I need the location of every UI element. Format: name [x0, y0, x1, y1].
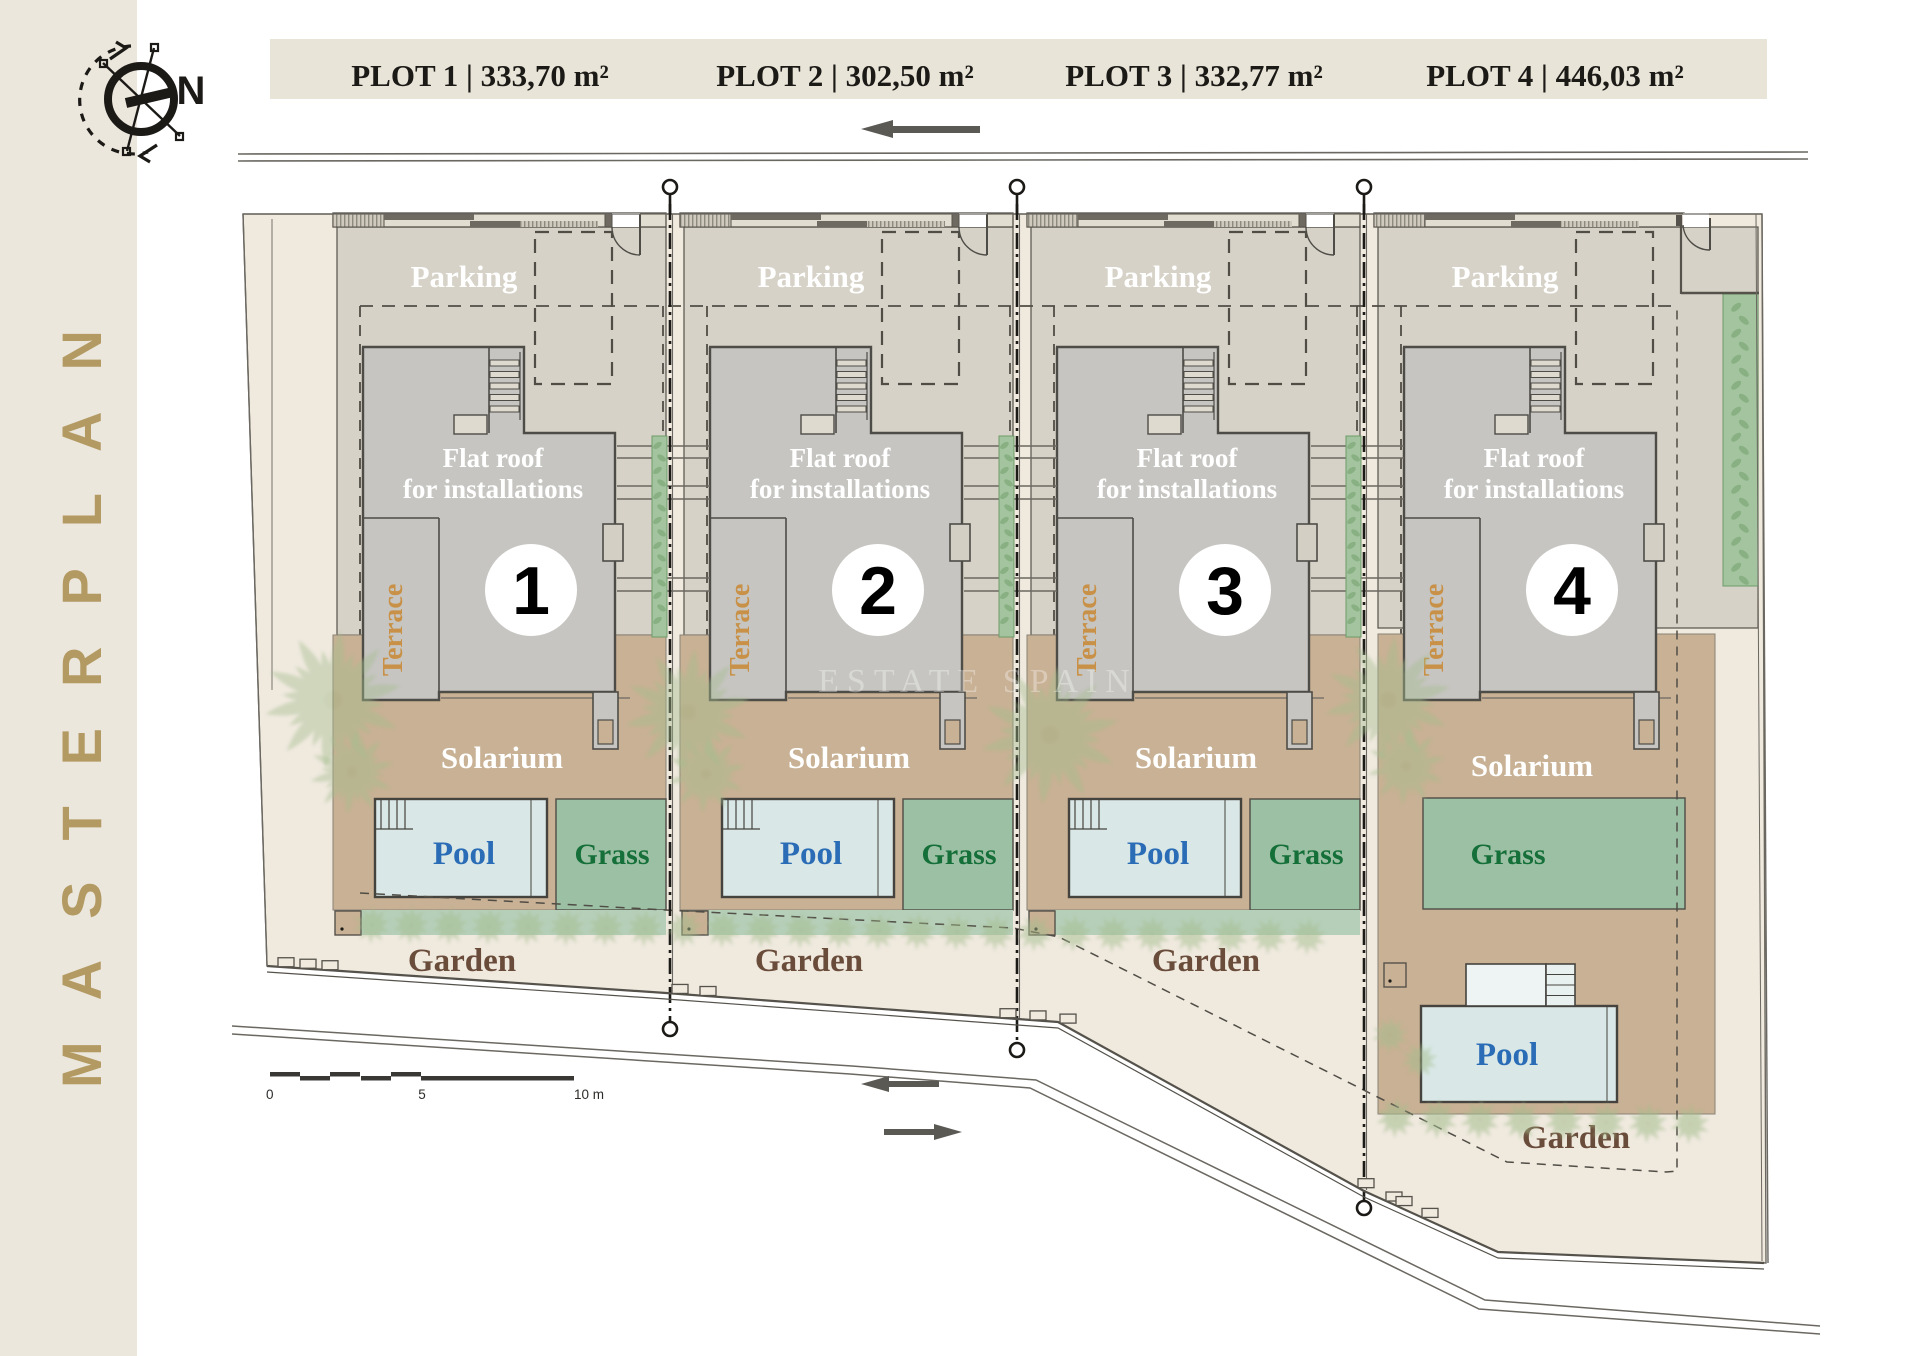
svg-text:1: 1	[512, 553, 550, 629]
svg-text:Parking: Parking	[411, 259, 518, 294]
svg-text:Flat roof: Flat roof	[790, 443, 892, 473]
svg-text:Pool: Pool	[1127, 836, 1189, 872]
svg-text:ESTATE SPAIN: ESTATE SPAIN	[818, 663, 1138, 700]
svg-text:Parking: Parking	[1105, 259, 1212, 294]
svg-text:N: N	[177, 69, 206, 113]
svg-text:Grass: Grass	[1471, 838, 1546, 871]
svg-text:5: 5	[418, 1087, 426, 1102]
svg-text:Solarium: Solarium	[788, 740, 910, 775]
svg-text:Garden: Garden	[755, 943, 863, 979]
svg-text:Solarium: Solarium	[441, 740, 563, 775]
svg-text:Terrace: Terrace	[378, 584, 409, 676]
svg-text:PLOT 1 | 333,70 m²: PLOT 1 | 333,70 m²	[351, 58, 609, 93]
svg-text:0: 0	[266, 1087, 274, 1102]
svg-text:Pool: Pool	[780, 836, 842, 872]
svg-text:2: 2	[859, 553, 897, 629]
svg-text:Flat roof: Flat roof	[443, 443, 545, 473]
svg-text:PLOT 4 | 446,03 m²: PLOT 4 | 446,03 m²	[1426, 58, 1684, 93]
svg-text:3: 3	[1206, 553, 1244, 629]
svg-text:PLOT 3 | 332,77 m²: PLOT 3 | 332,77 m²	[1065, 58, 1323, 93]
svg-text:Flat roof: Flat roof	[1484, 443, 1586, 473]
svg-text:Garden: Garden	[1152, 943, 1260, 979]
svg-text:Grass: Grass	[1269, 838, 1344, 871]
svg-text:Terrace: Terrace	[725, 584, 756, 676]
svg-text:for installations: for installations	[750, 474, 930, 504]
svg-text:4: 4	[1553, 553, 1591, 629]
svg-text:Parking: Parking	[1452, 259, 1559, 294]
svg-text:Solarium: Solarium	[1471, 748, 1593, 783]
svg-text:Grass: Grass	[575, 838, 650, 871]
svg-text:for installations: for installations	[1444, 474, 1624, 504]
svg-text:PLOT 2 | 302,50 m²: PLOT 2 | 302,50 m²	[716, 58, 974, 93]
svg-text:Flat roof: Flat roof	[1137, 443, 1239, 473]
svg-text:Pool: Pool	[433, 836, 495, 872]
svg-text:10 m: 10 m	[574, 1087, 604, 1102]
svg-text:for installations: for installations	[1097, 474, 1277, 504]
svg-text:Parking: Parking	[758, 259, 865, 294]
svg-text:Solarium: Solarium	[1135, 740, 1257, 775]
svg-text:MASTERPLAN: MASTERPLAN	[50, 289, 113, 1088]
svg-text:Garden: Garden	[408, 943, 516, 979]
svg-text:Grass: Grass	[922, 838, 997, 871]
svg-text:for installations: for installations	[403, 474, 583, 504]
svg-text:Pool: Pool	[1476, 1037, 1538, 1073]
